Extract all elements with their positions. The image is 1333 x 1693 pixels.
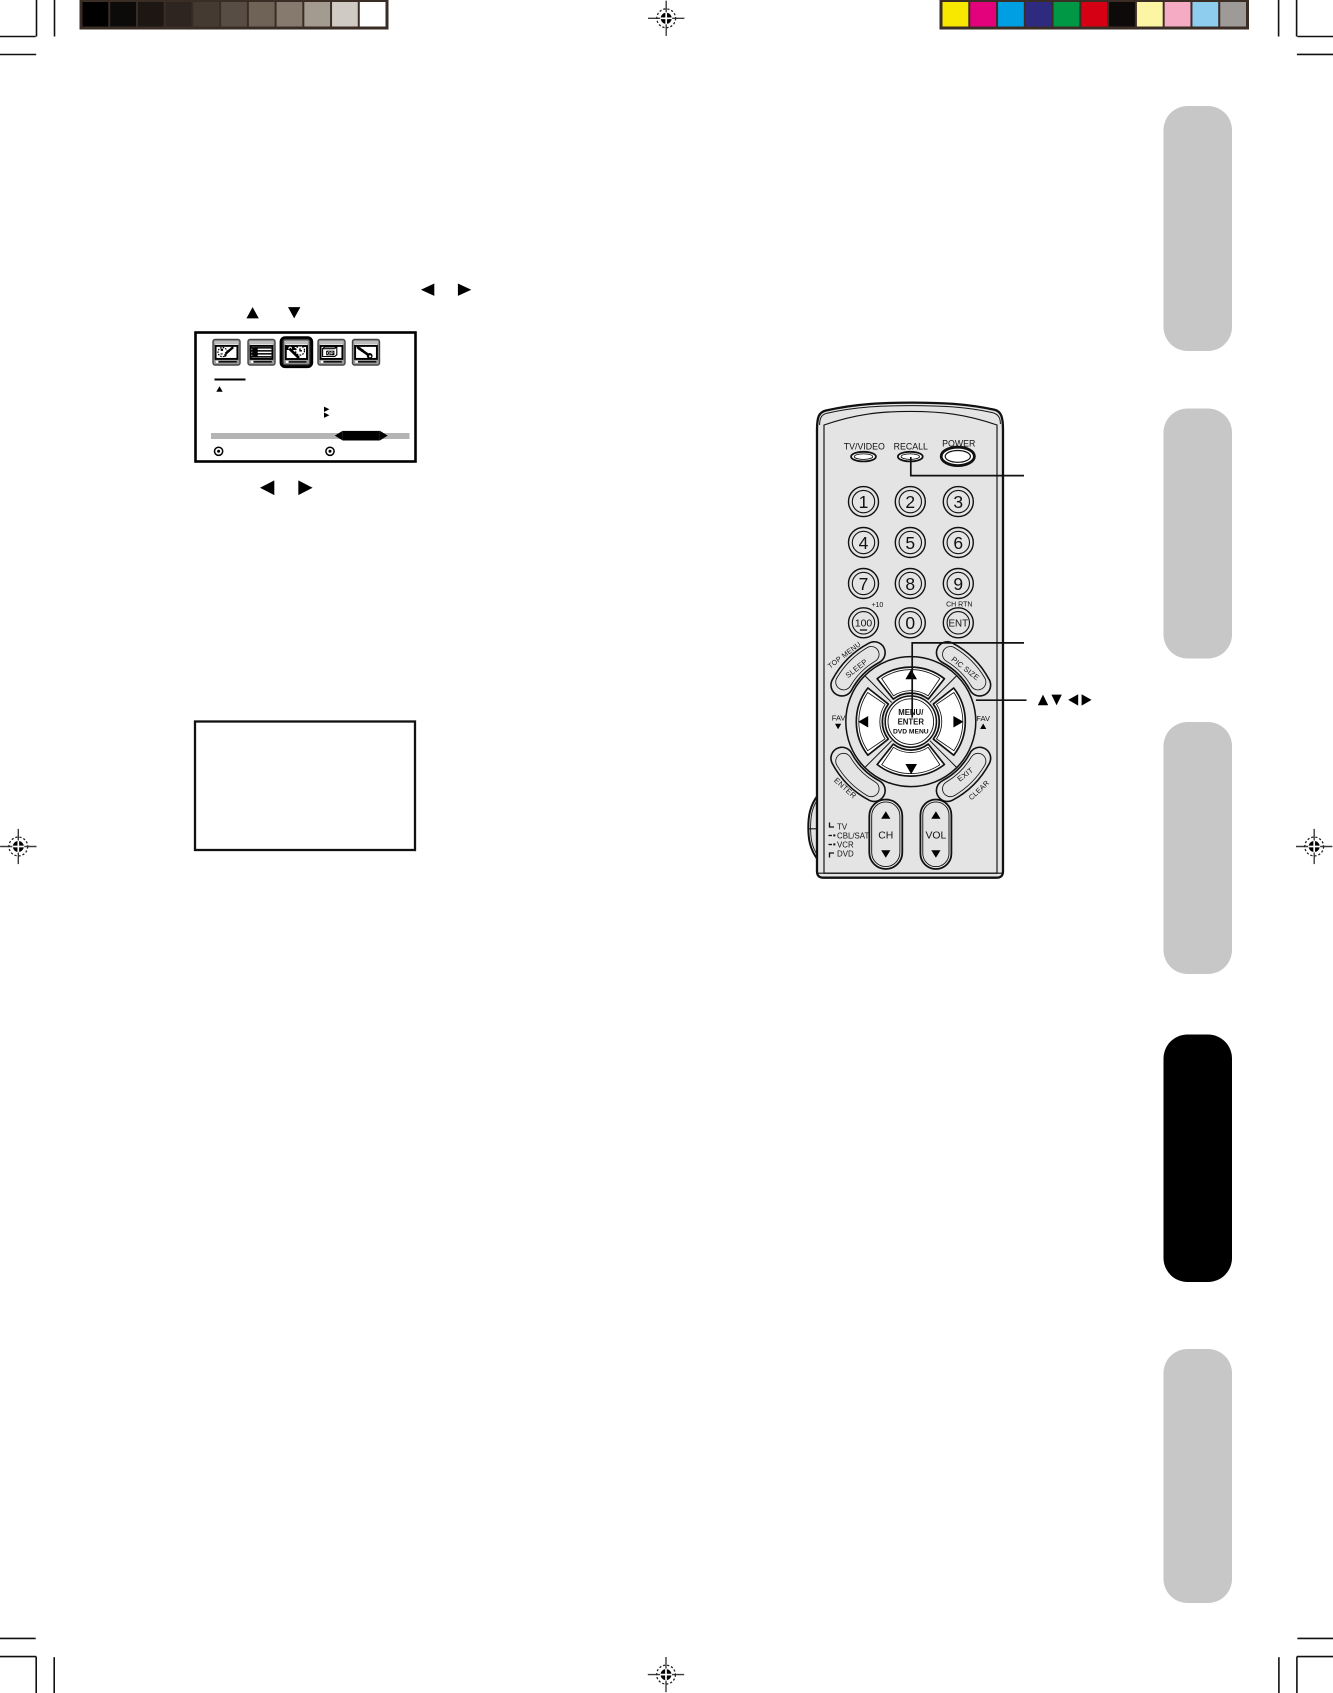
svg-text:7: 7 [859,574,869,594]
svg-text:OP: OP [327,350,334,355]
svg-text:3: 3 [953,492,963,512]
svg-text:VCR: VCR [837,841,854,850]
svg-text:FAV: FAV [832,713,847,722]
svg-text:ENT: ENT [948,618,968,629]
svg-text:5: 5 [905,533,915,553]
svg-text:100: 100 [855,618,873,629]
svg-text:8: 8 [905,574,915,594]
svg-text:1: 1 [859,492,869,512]
svg-text:2: 2 [905,492,915,512]
svg-text:VOL: VOL [926,830,947,841]
svg-text:6: 6 [953,533,963,553]
svg-text:RECALL: RECALL [894,441,928,451]
svg-text:0: 0 [905,613,915,633]
svg-text:MENU/: MENU/ [898,708,924,717]
svg-text:CH: CH [878,830,893,841]
svg-text:+10: +10 [871,602,883,609]
svg-text:FAV: FAV [976,714,991,723]
svg-text:9: 9 [953,574,963,594]
svg-text:TV: TV [837,822,848,831]
svg-text:CH RTN: CH RTN [946,602,972,609]
svg-text:DVD MENU: DVD MENU [893,728,929,735]
svg-text:4: 4 [859,533,869,553]
svg-text:ENTER: ENTER [898,717,925,726]
svg-text:DVD: DVD [837,849,854,858]
svg-text:TV/VIDEO: TV/VIDEO [844,441,885,451]
svg-text:CBL/SAT: CBL/SAT [837,832,869,841]
